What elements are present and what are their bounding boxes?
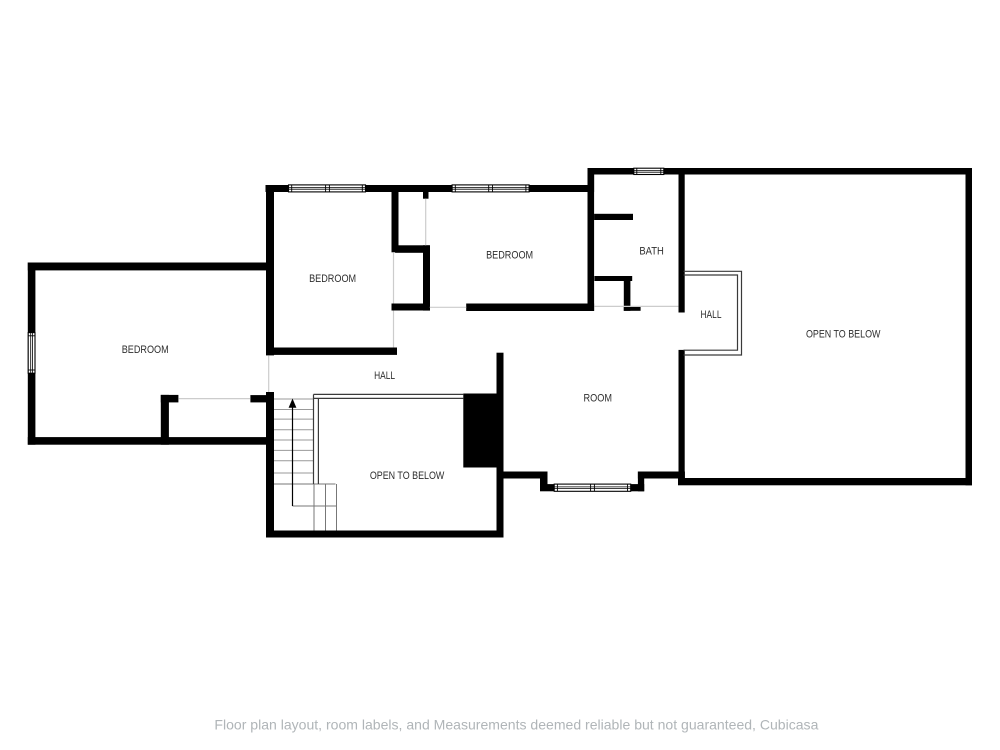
svg-text:BEDROOM: BEDROOM xyxy=(486,249,533,261)
svg-text:HALL: HALL xyxy=(374,370,395,382)
svg-text:BEDROOM: BEDROOM xyxy=(122,344,169,356)
svg-text:OPEN TO BELOW: OPEN TO BELOW xyxy=(806,329,881,341)
svg-text:Floor plan layout, room labels: Floor plan layout, room labels, and Meas… xyxy=(214,717,818,732)
svg-text:OPEN TO BELOW: OPEN TO BELOW xyxy=(370,470,445,482)
svg-text:BATH: BATH xyxy=(639,246,664,258)
svg-text:BEDROOM: BEDROOM xyxy=(309,273,356,285)
svg-text:HALL: HALL xyxy=(701,309,722,321)
svg-text:ROOM: ROOM xyxy=(584,392,613,404)
